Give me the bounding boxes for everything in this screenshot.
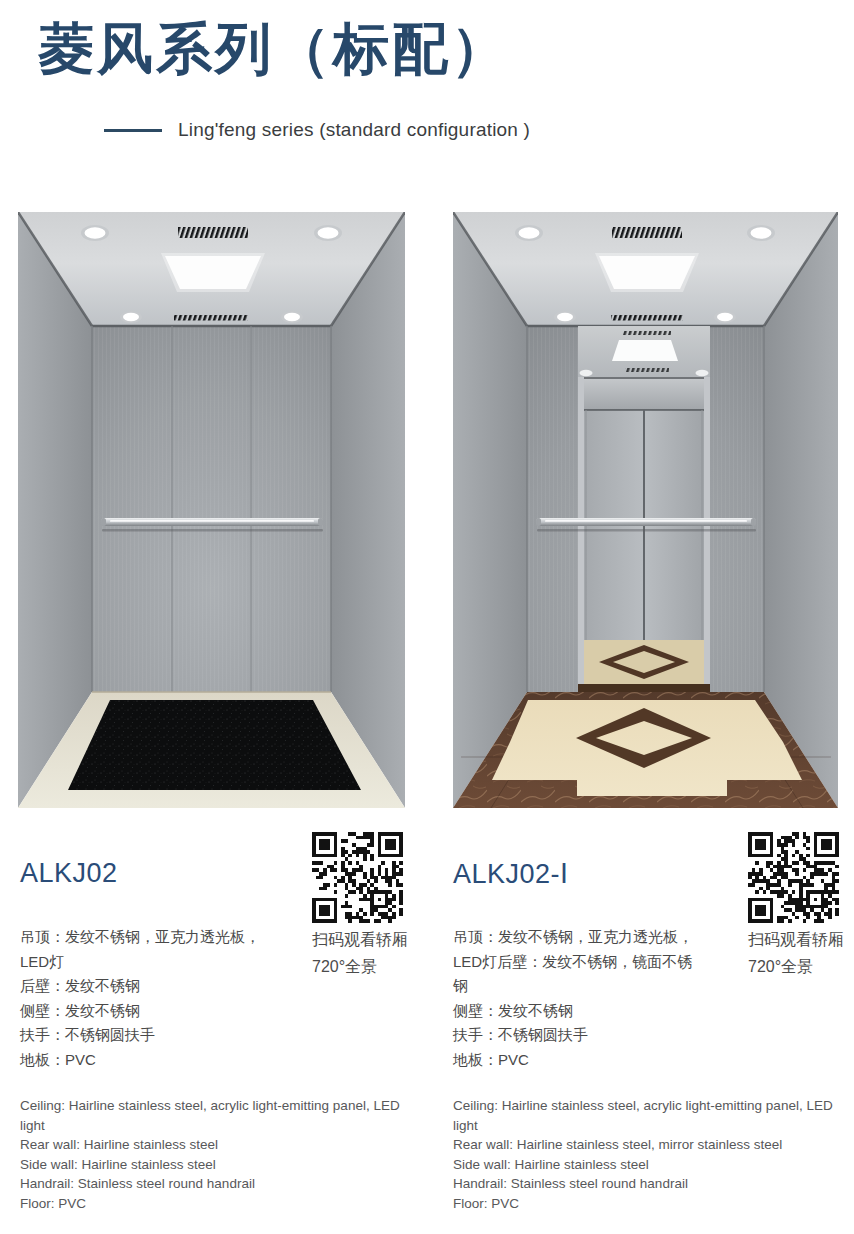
spec-line-cn: 吊顶：发纹不锈钢，亚克力透光板，LED灯 xyxy=(20,925,265,974)
catalog-page: 菱风系列（标配） Ling'feng series (standard conf… xyxy=(0,0,854,1234)
spec-line-cn: 侧壁：发纹不锈钢 xyxy=(20,999,265,1024)
spec-line-cn: 地板：PVC xyxy=(453,1048,698,1073)
handrail xyxy=(536,518,756,532)
specs-english: Ceiling: Hairline stainless steel, acryl… xyxy=(453,1096,843,1213)
page-subtitle: Ling'feng series (standard configuration… xyxy=(178,119,530,141)
model-name-alkj02: ALKJ02 xyxy=(20,858,118,889)
qr-caption-line: 扫码观看轿厢 xyxy=(312,926,408,953)
mirror-rear-wall xyxy=(578,326,710,692)
ceiling-vent-grille xyxy=(612,227,682,238)
spec-line-en: Handrail: Stainless steel round handrail xyxy=(20,1174,420,1194)
qr-caption: 扫码观看轿厢 720°全景 xyxy=(748,926,844,980)
specs-chinese: 吊顶：发纹不锈钢，亚克力透光板，LED灯后壁：发纹不锈钢，镜面不锈钢 侧壁：发纹… xyxy=(453,925,698,1072)
qr-caption-line: 扫码观看轿厢 xyxy=(748,926,844,953)
spec-line-en: Ceiling: Hairline stainless steel, acryl… xyxy=(20,1096,420,1135)
model-name-alkj02-1: ALKJ02-Ⅰ xyxy=(453,858,569,890)
title-dash-line xyxy=(104,129,162,132)
qr-code xyxy=(748,832,839,923)
reflected-vent-grille xyxy=(623,331,671,335)
floor-mat-pvc xyxy=(68,700,361,790)
qr-code xyxy=(312,832,403,923)
spec-line-cn: 扶手：不锈钢圆扶手 xyxy=(453,1023,698,1048)
spec-line-en: Rear wall: Hairline stainless steel xyxy=(20,1135,420,1155)
ceiling-vent-grille xyxy=(178,227,248,238)
specs-english: Ceiling: Hairline stainless steel, acryl… xyxy=(20,1096,420,1213)
specs-chinese: 吊顶：发纹不锈钢，亚克力透光板，LED灯 后壁：发纹不锈钢 侧壁：发纹不锈钢 扶… xyxy=(20,925,265,1072)
rear-wall-vent-strip xyxy=(611,315,683,321)
elevator-render-alkj02-1 xyxy=(453,212,838,808)
spec-line-en: Side wall: Hairline stainless steel xyxy=(20,1155,420,1175)
elevator-render-alkj02 xyxy=(18,212,405,808)
spec-line-en: Rear wall: Hairline stainless steel, mir… xyxy=(453,1135,843,1155)
reflected-door-header xyxy=(578,377,710,410)
spec-line-cn: 后壁：发纹不锈钢 xyxy=(20,974,265,999)
spec-line-en: Floor: PVC xyxy=(453,1194,843,1214)
spec-line-en: Floor: PVC xyxy=(20,1194,420,1214)
spec-line-en: Ceiling: Hairline stainless steel, acryl… xyxy=(453,1096,843,1135)
page-subtitle-row: Ling'feng series (standard configuration… xyxy=(104,119,530,141)
ceiling-light-panel xyxy=(165,256,261,289)
elevator-interior-illustration xyxy=(18,212,405,808)
spec-line-en: Side wall: Hairline stainless steel xyxy=(453,1155,843,1175)
handrail xyxy=(101,518,323,532)
qr-caption-line: 720°全景 xyxy=(748,953,844,980)
elevator-interior-illustration xyxy=(453,212,838,808)
qr-caption: 扫码观看轿厢 720°全景 xyxy=(312,926,408,980)
spec-line-en: Handrail: Stainless steel round handrail xyxy=(453,1174,843,1194)
qr-caption-line: 720°全景 xyxy=(312,953,408,980)
spec-line-cn: 侧壁：发纹不锈钢 xyxy=(453,999,698,1024)
spec-line-cn: 吊顶：发纹不锈钢，亚克力透光板，LED灯后壁：发纹不锈钢，镜面不锈钢 xyxy=(453,925,698,999)
ceiling-light-panel xyxy=(599,256,695,289)
reflected-light-panel xyxy=(612,340,678,361)
rear-wall-vent-strip xyxy=(174,315,248,321)
page-title: 菱风系列（标配） xyxy=(38,12,510,88)
spec-line-cn: 地板：PVC xyxy=(20,1048,265,1073)
spec-line-cn: 扶手：不锈钢圆扶手 xyxy=(20,1023,265,1048)
